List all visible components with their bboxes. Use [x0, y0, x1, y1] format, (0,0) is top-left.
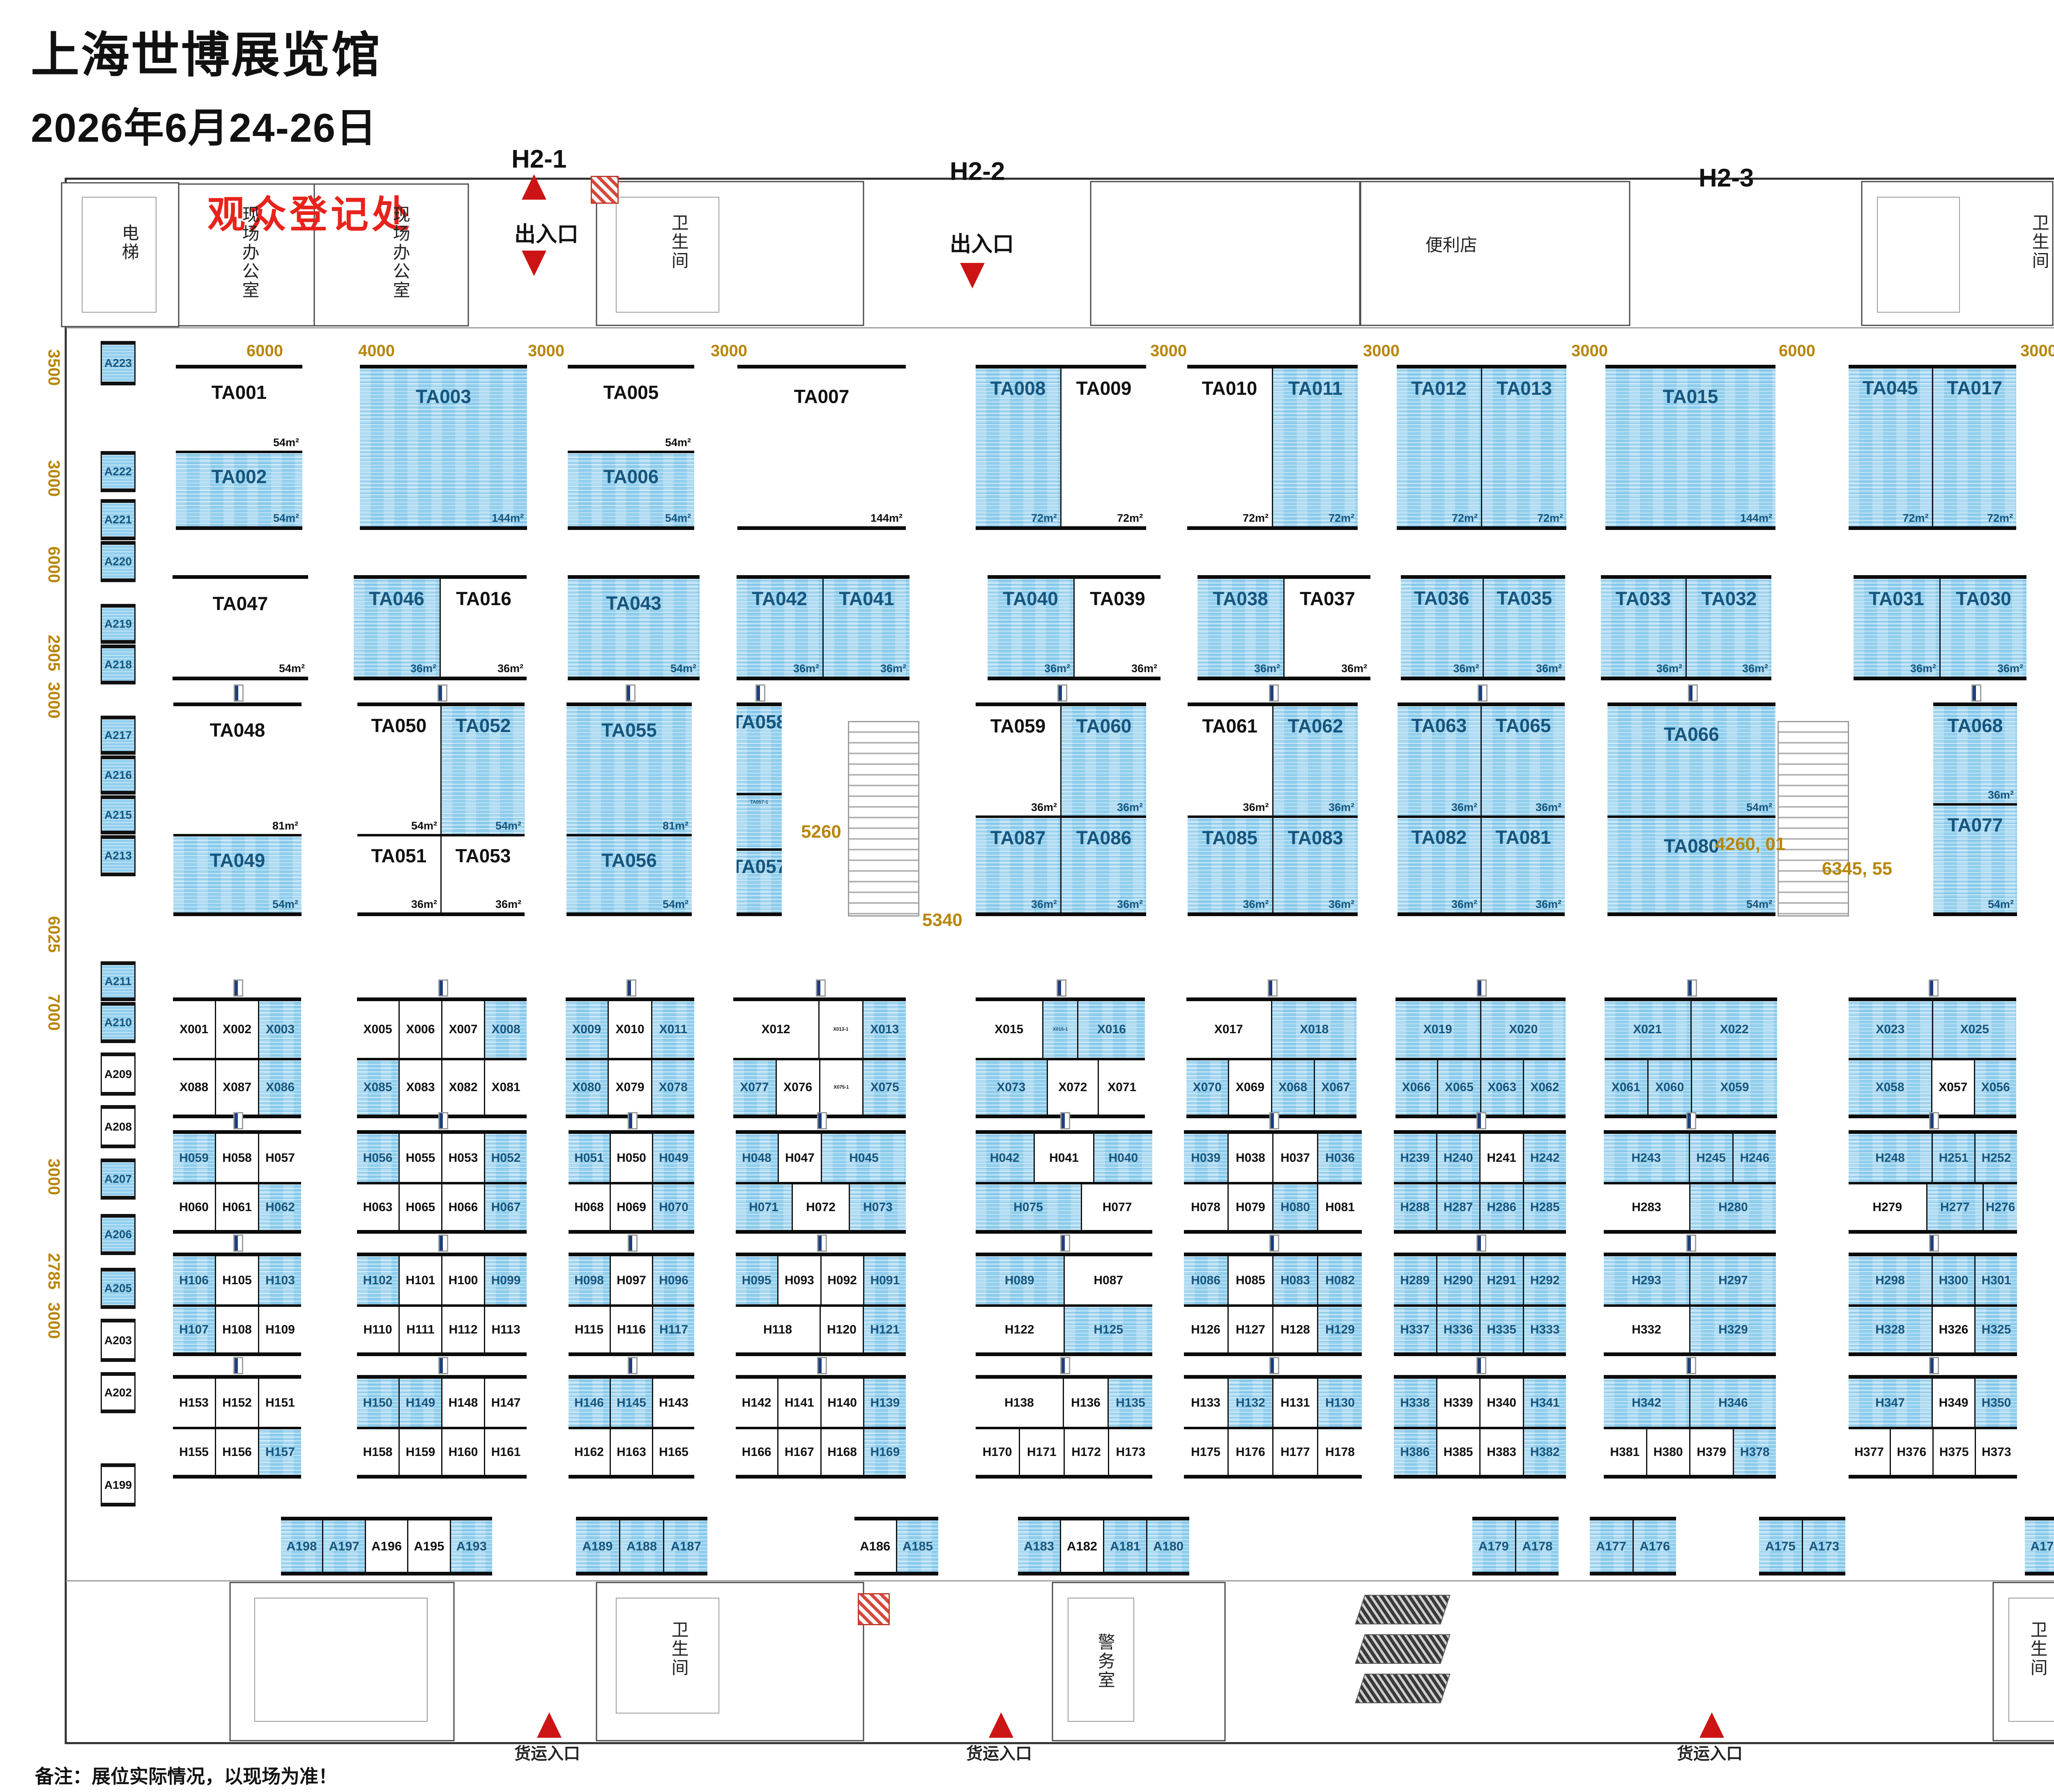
booth-block: TA06136m²TA06236m²TA08536m²TA08336m²	[1188, 703, 1358, 916]
booth-X087: X087	[215, 1060, 258, 1115]
dimension-label: 4260, 01	[1715, 834, 1785, 855]
dimension-label: 3000	[44, 460, 63, 497]
booth-H285: H285	[1523, 1184, 1566, 1230]
booth-block: H239H240H241H242H288H287H286H285	[1394, 1130, 1566, 1234]
booth-TA086: TA08636m²	[1060, 818, 1146, 912]
door-label: 出入口	[950, 227, 1014, 258]
door-icon	[1476, 1357, 1486, 1374]
booth-TA007: TA007144m²	[737, 369, 906, 526]
booth-block: A177A176	[1590, 1517, 1676, 1575]
booth-A223: A223	[101, 341, 136, 385]
booth-H122: H122	[976, 1307, 1064, 1352]
booth-X010: X010	[608, 1001, 651, 1058]
booth-block: H150H149H148H147H158H159H160H161	[357, 1375, 527, 1479]
booth-H068: H068	[569, 1184, 610, 1230]
door-icon	[233, 1112, 243, 1129]
booth-H063: H063	[357, 1184, 398, 1230]
booth-H162: H162	[569, 1429, 610, 1475]
booth-TA082: TA08236m²	[1398, 818, 1481, 912]
door-label: 出入口	[514, 217, 578, 248]
entrance-label-H2-3: H2-3	[1699, 164, 1754, 193]
freight-entrance-label: 货运入口	[966, 1745, 1032, 1762]
door-icon	[1476, 1112, 1486, 1129]
booth-A193: A193	[450, 1520, 492, 1572]
footnote: 备注：展位实际情况，以现场为准！	[35, 1762, 337, 1789]
door-icon	[1929, 1235, 1939, 1252]
booth-H060: H060	[173, 1184, 215, 1230]
entrance-arrow-down-icon	[960, 263, 985, 288]
booth-TA043: TA04354m²	[568, 579, 700, 677]
booth-block: TA06654m²TA08054m²	[1607, 703, 1775, 916]
ramp	[1355, 1634, 1450, 1664]
booth-block: H338H339H340H341H386H385H383H382	[1394, 1375, 1566, 1479]
door-icon	[1060, 1235, 1070, 1252]
booth-H166: H166	[736, 1429, 777, 1475]
booth-block: TA058TA057-1TA057	[737, 703, 782, 916]
booth-TA015: TA015144m²	[1605, 369, 1775, 526]
booth-H116: H116	[610, 1307, 652, 1352]
booth-H105: H105	[215, 1256, 258, 1304]
booth-H337: H337	[1394, 1307, 1436, 1352]
booth-H283: H283	[1604, 1184, 1689, 1230]
booth-H102: H102	[357, 1256, 398, 1304]
booth-H081: H081	[1317, 1184, 1362, 1230]
booth-block: X009X010X011X080X079X078	[566, 997, 694, 1118]
booth-A220: A220	[101, 541, 136, 582]
booth-X017: X017	[1186, 1001, 1271, 1058]
door-icon	[1688, 684, 1698, 702]
booth-H118: H118	[736, 1307, 820, 1352]
booth-block: A172	[2025, 1517, 2054, 1575]
booth-X019: X019	[1395, 1001, 1480, 1058]
booth-X059: X059	[1691, 1060, 1777, 1115]
booth-X020: X020	[1480, 1001, 1566, 1058]
booth-H149: H149	[398, 1379, 441, 1427]
booth-H142: H142	[736, 1379, 777, 1427]
booth-H178: H178	[1317, 1429, 1362, 1475]
booth-X007: X007	[441, 1001, 484, 1058]
booth-H140: H140	[820, 1379, 863, 1427]
booth-H147: H147	[484, 1379, 527, 1427]
booth-TA032: TA03236m²	[1686, 579, 1771, 677]
booth-H280: H280	[1689, 1184, 1776, 1230]
dimension-label: 3000	[528, 342, 564, 360]
booth-block: TA01272m²TA01372m²	[1397, 365, 1566, 530]
booth-X075-1: X075-1	[819, 1060, 863, 1115]
booth-TA048: TA04881m²	[173, 706, 302, 834]
booth-H171: H171	[1019, 1429, 1063, 1475]
booth-H096: H096	[652, 1256, 694, 1304]
door-icon	[1929, 1357, 1939, 1374]
hatch-marker	[858, 1593, 890, 1625]
dimension-label: 6000	[246, 342, 283, 360]
booth-H167: H167	[777, 1429, 820, 1475]
booth-H093: H093	[777, 1256, 820, 1304]
booth-H077: H077	[1081, 1184, 1152, 1230]
freight-entrance-label: 货运入口	[1677, 1745, 1743, 1762]
booth-TA011: TA01172m²	[1272, 369, 1358, 526]
booth-H072: H072	[792, 1184, 849, 1230]
booth-block: H048H047H045H071H072H073	[736, 1130, 906, 1234]
booth-block: H106H105H103H107H108H109	[173, 1253, 301, 1356]
dimension-label: 6025	[44, 916, 63, 953]
booth-H121: H121	[863, 1307, 906, 1352]
booth-H086: H086	[1184, 1256, 1227, 1304]
booth-H106: H106	[173, 1256, 215, 1304]
booth-H153: H153	[173, 1379, 215, 1427]
booth-TA060: TA06036m²	[1060, 706, 1146, 815]
booth-block: H059H058H057H060H061H062	[173, 1130, 301, 1234]
booth-H045: H045	[821, 1134, 906, 1182]
booth-X086: X086	[258, 1060, 301, 1115]
booth-block: A175A173	[1759, 1517, 1845, 1575]
booth-TA045: TA04572m²	[1849, 369, 1932, 526]
dimension-label: 3000	[1150, 342, 1187, 360]
booth-X023: X023	[1849, 1001, 1932, 1058]
booth-H048: H048	[736, 1134, 778, 1182]
booth-H070: H070	[652, 1184, 694, 1230]
booth-H333: H333	[1523, 1307, 1566, 1352]
dimension-label: 3000	[44, 1302, 63, 1339]
booth-X013: X013	[862, 1001, 906, 1058]
stairs	[1778, 721, 1849, 917]
booth-TA065: TA06536m²	[1481, 706, 1565, 815]
booth-H071: H071	[736, 1184, 792, 1230]
booth-H168: H168	[820, 1429, 863, 1475]
dimension-label: 3000	[1363, 342, 1400, 360]
booth-block: TA04354m²	[568, 575, 700, 680]
booth-TA002: TA00254m²	[176, 453, 302, 526]
dimension-label: 5260	[801, 822, 841, 842]
booth-X006: X006	[398, 1001, 441, 1058]
booth-H252: H252	[1974, 1134, 2017, 1182]
booth-H381: H381	[1604, 1429, 1646, 1475]
booth-A217: A217	[101, 716, 136, 755]
booth-TA041: TA04136m²	[822, 579, 910, 677]
booth-TA051: TA05136m²	[357, 836, 440, 912]
booth-X057: X057	[1931, 1060, 1974, 1115]
booth-A216: A216	[101, 755, 136, 795]
booth-block: H056H055H053H052H063H065H066H067	[357, 1130, 527, 1234]
booth-A176: A176	[1633, 1520, 1676, 1572]
facility-label: 警务室	[1096, 1633, 1114, 1690]
visitor-registration-label: 观众登记处	[207, 184, 413, 239]
booth-H378: H378	[1733, 1429, 1776, 1475]
booth-X082: X082	[441, 1060, 484, 1115]
booth-H050: H050	[610, 1134, 652, 1182]
booth-H341: H341	[1523, 1379, 1566, 1427]
booth-H339: H339	[1436, 1379, 1480, 1427]
booth-H133: H133	[1184, 1379, 1227, 1427]
booth-X079: X079	[608, 1060, 651, 1115]
facility-label: 卫生间	[2030, 214, 2048, 270]
door-icon	[1477, 979, 1487, 997]
booth-H107: H107	[173, 1307, 215, 1352]
booth-X022: X022	[1690, 1001, 1778, 1058]
booth-X078: X078	[651, 1060, 694, 1115]
booth-block: H051H050H049H068H069H070	[569, 1130, 694, 1234]
booth-H155: H155	[173, 1429, 215, 1475]
booth-A203: A203	[101, 1319, 136, 1362]
booth-H251: H251	[1932, 1134, 1974, 1182]
booth-H160: H160	[441, 1429, 484, 1475]
door-icon	[1057, 684, 1067, 702]
booth-H332: H332	[1604, 1307, 1689, 1352]
booth-X015-1: X015-1	[1042, 1001, 1077, 1058]
booth-H297: H297	[1689, 1256, 1776, 1304]
booth-TA036: TA03636m²	[1401, 579, 1483, 677]
booth-block: H095H093H092H091H118H120H121	[736, 1253, 906, 1356]
entrance-label-H2-2: H2-2	[950, 157, 1005, 186]
booth-TA040: TA04036m²	[988, 579, 1073, 677]
booth-TA016: TA01636m²	[440, 579, 527, 677]
booth-block: H142H141H140H139H166H167H168H169	[736, 1375, 906, 1479]
booth-H117: H117	[652, 1307, 694, 1352]
booth-block: TA04754m²	[173, 575, 308, 680]
booth-TA009: TA00972m²	[1060, 369, 1146, 526]
booth-H288: H288	[1394, 1184, 1436, 1230]
booth-block: TA05054m²TA05254m²TA05136m²TA05336m²	[357, 703, 525, 916]
booth-A222: A222	[101, 451, 136, 492]
floor-plan-page: 上海世博展览馆 2026年6月24-26日 观众登记处 备注：展位实际情况，以现…	[0, 0, 2054, 1792]
booth-H143: H143	[652, 1379, 694, 1427]
booth-H298: H298	[1849, 1256, 1932, 1304]
ramp	[1355, 1595, 1450, 1624]
booth-H056: H056	[357, 1134, 398, 1182]
booth-block: H347H349H350H377H376H375H373	[1849, 1375, 2017, 1479]
booth-TA087: TA08736m²	[976, 818, 1060, 912]
booth-H300: H300	[1932, 1256, 1974, 1304]
page-title: 上海世博展览馆	[31, 16, 382, 86]
booth-H097: H097	[610, 1256, 652, 1304]
booth-X058: X058	[1849, 1060, 1931, 1115]
booth-TA057: TA057	[737, 851, 782, 912]
stairs	[848, 721, 919, 917]
booth-X013-1: X013-1	[818, 1001, 862, 1058]
freight-arrow-icon	[1699, 1712, 1724, 1738]
booth-TA030: TA03036m²	[1939, 579, 2026, 677]
dimension-label: 6000	[1779, 342, 1815, 360]
booth-H126: H126	[1184, 1307, 1227, 1352]
booth-block: H138H136H135H170H171H172H173	[976, 1375, 1152, 1479]
booth-block: H098H097H096H115H116H117	[569, 1253, 694, 1356]
door-icon	[628, 1235, 638, 1252]
booth-TA038: TA03836m²	[1197, 579, 1283, 677]
booth-block: A186A185	[854, 1517, 938, 1575]
booth-A196: A196	[365, 1520, 407, 1572]
booth-TA083: TA08336m²	[1272, 818, 1358, 912]
booth-H040: H040	[1093, 1134, 1152, 1182]
booth-X003: X003	[258, 1001, 301, 1058]
booth-A207: A207	[101, 1159, 136, 1200]
booth-TA050: TA05054m²	[357, 706, 440, 834]
booth-H177: H177	[1272, 1429, 1317, 1475]
door-icon	[1971, 684, 1981, 702]
door-icon	[817, 1112, 827, 1129]
booth-block: X017X018X070X069X068X067	[1186, 997, 1356, 1118]
facility-label: 现场办公室	[391, 205, 409, 300]
booth-H148: H148	[441, 1379, 484, 1427]
booth-A182: A182	[1060, 1520, 1103, 1572]
door-icon	[1057, 979, 1066, 997]
booth-H335: H335	[1479, 1307, 1523, 1352]
event-date: 2026年6月24-26日	[31, 95, 377, 154]
booth-A181: A181	[1103, 1520, 1146, 1572]
booth-H170: H170	[976, 1429, 1019, 1475]
booth-H099: H099	[484, 1256, 527, 1304]
booth-H069: H069	[610, 1184, 652, 1230]
booth-block: X015X015-1X016X073X072X071	[976, 997, 1145, 1118]
booth-block: TA04881m²TA04954m²	[173, 703, 302, 916]
booth-X072: X072	[1047, 1060, 1098, 1115]
booth-block: TA00872m²TA00972m²	[976, 365, 1146, 530]
booth-H101: H101	[398, 1256, 441, 1304]
booth-block: A189A188A187	[576, 1517, 707, 1575]
booth-block: H153H152H151H155H156H157	[173, 1375, 301, 1479]
booth-H152: H152	[215, 1379, 258, 1427]
booth-block: X023X025X058X057X056	[1849, 997, 2016, 1118]
door-icon	[817, 1357, 827, 1374]
booth-H136: H136	[1063, 1379, 1108, 1427]
booth-X077: X077	[733, 1060, 776, 1115]
booth-H325: H325	[1974, 1307, 2017, 1352]
booth-H287: H287	[1436, 1184, 1480, 1230]
booth-H078: H078	[1184, 1184, 1227, 1230]
booth-block: H298H300H301H328H326H325	[1849, 1253, 2017, 1356]
booth-TA056: TA05654m²	[566, 836, 692, 912]
booth-H349: H349	[1932, 1379, 1974, 1427]
booth-H289: H289	[1394, 1256, 1436, 1304]
booth-block: TA00154m²TA00254m²	[176, 365, 302, 530]
booth-H120: H120	[820, 1307, 863, 1352]
dimension-label: 3000	[711, 342, 747, 360]
booth-block: TA04572m²TA01772m²	[1849, 365, 2016, 530]
booth-TA035: TA03536m²	[1483, 579, 1566, 677]
booth-H165: H165	[652, 1429, 694, 1475]
booth-H089: H089	[976, 1256, 1064, 1304]
booth-H085: H085	[1227, 1256, 1272, 1304]
booth-H047: H047	[778, 1134, 821, 1182]
door-icon	[438, 979, 448, 997]
booth-TA053: TA05336m²	[440, 836, 525, 912]
dimension-label: 3000	[44, 1159, 63, 1195]
booth-block: H146H145H143H162H163H165	[569, 1375, 694, 1479]
booth-H098: H098	[569, 1256, 610, 1304]
booth-A198: A198	[281, 1520, 322, 1572]
door-icon	[438, 684, 447, 702]
booth-H145: H145	[610, 1379, 652, 1427]
booth-TA042: TA04236m²	[737, 579, 822, 677]
booth-A183: A183	[1018, 1520, 1060, 1572]
booth-H377: H377	[1849, 1429, 1890, 1475]
booth-block: H042H041H040H075H077	[976, 1130, 1152, 1234]
booth-X002: X002	[215, 1001, 258, 1058]
booth-A177: A177	[1590, 1520, 1633, 1572]
booth-H082: H082	[1317, 1256, 1362, 1304]
booth-block: TA003144m²	[360, 365, 527, 530]
booth-A210: A210	[101, 1002, 136, 1043]
booth-H067: H067	[484, 1184, 527, 1230]
booth-H051: H051	[569, 1134, 610, 1182]
booth-H055: H055	[398, 1134, 441, 1182]
booth-TA013: TA01372m²	[1481, 369, 1566, 526]
booth-X062: X062	[1523, 1060, 1566, 1115]
booth-H242: H242	[1523, 1134, 1566, 1182]
booth-H239: H239	[1394, 1134, 1436, 1182]
booth-H135: H135	[1108, 1379, 1152, 1427]
booth-H240: H240	[1436, 1134, 1480, 1182]
booth-H095: H095	[736, 1256, 777, 1304]
booth-TA003: TA003144m²	[360, 369, 527, 526]
booth-H053: H053	[441, 1134, 484, 1182]
freight-arrow-icon	[537, 1712, 562, 1738]
entrance-arrow-down-icon	[522, 251, 546, 276]
booth-A199: A199	[101, 1463, 136, 1506]
dimension-label: 6345, 55	[1822, 859, 1892, 879]
booth-H163: H163	[610, 1429, 652, 1475]
booth-TA046: TA04636m²	[354, 579, 440, 677]
booth-A197: A197	[322, 1520, 364, 1572]
door-icon	[438, 1357, 448, 1374]
booth-H376: H376	[1890, 1429, 1932, 1475]
booth-H109: H109	[258, 1307, 301, 1352]
booth-H131: H131	[1272, 1379, 1317, 1427]
booth-H091: H091	[863, 1256, 906, 1304]
booth-H346: H346	[1689, 1379, 1776, 1427]
booth-block: TA05581m²TA05654m²	[566, 703, 692, 916]
booth-X001: X001	[173, 1001, 215, 1058]
booth-H293: H293	[1604, 1256, 1689, 1304]
booth-X015: X015	[976, 1001, 1042, 1058]
booth-TA055: TA05581m²	[566, 706, 692, 834]
booth-block: TA03836m²TA03736m²	[1197, 575, 1370, 680]
door-icon	[1686, 1235, 1696, 1252]
booth-H383: H383	[1479, 1429, 1523, 1475]
booth-block: TA04036m²TA03936m²	[988, 575, 1161, 680]
booth-H290: H290	[1436, 1256, 1480, 1304]
booth-H347: H347	[1849, 1379, 1932, 1427]
booth-H241: H241	[1479, 1134, 1523, 1182]
booth-H380: H380	[1646, 1429, 1690, 1475]
booth-block: H102H101H100H099H110H111H112H113	[357, 1253, 527, 1356]
booth-A221: A221	[101, 499, 136, 540]
booth-TA037: TA03736m²	[1283, 579, 1370, 677]
booth-X085: X085	[357, 1060, 398, 1115]
booth-H079: H079	[1227, 1184, 1272, 1230]
booth-H156: H156	[215, 1429, 258, 1475]
booth-A215: A215	[101, 795, 136, 834]
booth-TA049: TA04954m²	[173, 836, 302, 912]
booth-H138: H138	[976, 1379, 1063, 1427]
booth-H386: H386	[1394, 1429, 1436, 1475]
booth-H130: H130	[1317, 1379, 1362, 1427]
booth-TA085: TA08536m²	[1188, 818, 1272, 912]
booth-H057: H057	[258, 1134, 301, 1182]
booth-H150: H150	[357, 1379, 398, 1427]
booth-block: TA04236m²TA04136m²	[737, 575, 910, 680]
booth-A173: A173	[1802, 1520, 1846, 1572]
booth-A172: A172	[2025, 1520, 2054, 1572]
booth-H338: H338	[1394, 1379, 1436, 1427]
booth-block: TA007144m²	[737, 365, 906, 530]
dimension-label: 3500	[44, 349, 63, 386]
booth-TA057-1: TA057-1	[737, 795, 782, 849]
facility-label: 卫生间	[2029, 1621, 2047, 1677]
booth-H248: H248	[1849, 1134, 1932, 1182]
booth-H379: H379	[1689, 1429, 1733, 1475]
dimension-label: 5340	[922, 910, 963, 931]
booth-H127: H127	[1227, 1307, 1272, 1352]
